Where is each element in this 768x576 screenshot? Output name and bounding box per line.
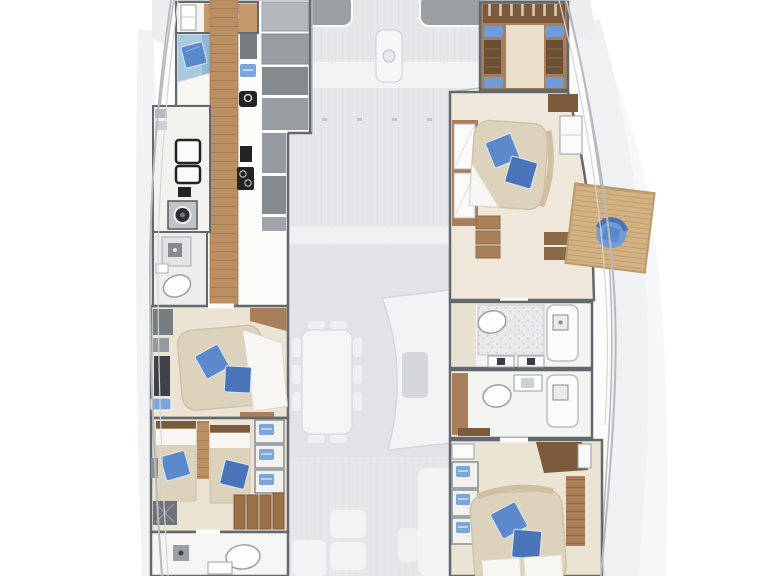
wood-shelf	[458, 428, 490, 436]
starboard-forepeak-cabin	[480, 2, 568, 90]
starboard-fore-cabin	[450, 92, 594, 303]
catamaran-floor-plan	[0, 0, 768, 576]
port-mid-bathroom	[153, 232, 207, 306]
shower	[162, 237, 191, 266]
washbasin	[208, 562, 232, 574]
shower-tray	[547, 375, 578, 427]
stove	[237, 167, 254, 190]
port-aft-bathroom	[151, 530, 288, 576]
cabinet-wood	[548, 94, 578, 112]
double-bed	[469, 485, 567, 576]
washing-machine	[168, 201, 197, 229]
locker	[578, 444, 591, 468]
floor-plan-canvas	[0, 0, 768, 576]
desk	[154, 356, 170, 396]
blue-pillow	[181, 42, 208, 69]
wardrobe	[255, 420, 284, 493]
locker-dark	[240, 34, 257, 59]
galley-appliance	[178, 187, 191, 197]
door-gap	[500, 438, 528, 443]
saloon-dining-table	[292, 321, 362, 443]
blue-pillow	[219, 459, 249, 489]
double-bed	[469, 119, 553, 210]
coffee-table	[402, 352, 428, 398]
blue-pillow	[512, 529, 542, 559]
blue-washbasin	[151, 398, 171, 410]
starboard-mid-bathroom	[450, 302, 592, 368]
twin-bed-right	[210, 433, 250, 503]
door-gap	[208, 304, 234, 309]
berth	[506, 25, 544, 88]
port-fore-cabin	[176, 33, 212, 106]
shower-tray	[547, 305, 578, 361]
headboard	[210, 425, 250, 433]
wood-panel	[566, 476, 585, 546]
cabinet	[153, 309, 173, 335]
windlass	[376, 30, 402, 82]
starboard-balcony-platform	[565, 183, 654, 272]
port-mid-cabin	[151, 304, 288, 421]
headboard	[156, 421, 196, 429]
vanity-sink	[514, 375, 542, 391]
faucet-unit	[240, 146, 252, 162]
starboard-aft-cabin	[450, 438, 602, 576]
port-hull	[151, 0, 312, 576]
port-corridor	[210, 0, 238, 306]
starboard-aft-bathroom	[450, 370, 592, 438]
shower	[173, 545, 189, 561]
nightstand	[197, 421, 209, 479]
door-gap	[196, 530, 220, 535]
blue-towel	[240, 64, 256, 77]
fridge	[176, 140, 200, 183]
blue-pillow	[224, 366, 251, 393]
port-aft-cabin	[151, 418, 288, 532]
galley-sink	[239, 91, 257, 107]
steps	[476, 216, 500, 258]
